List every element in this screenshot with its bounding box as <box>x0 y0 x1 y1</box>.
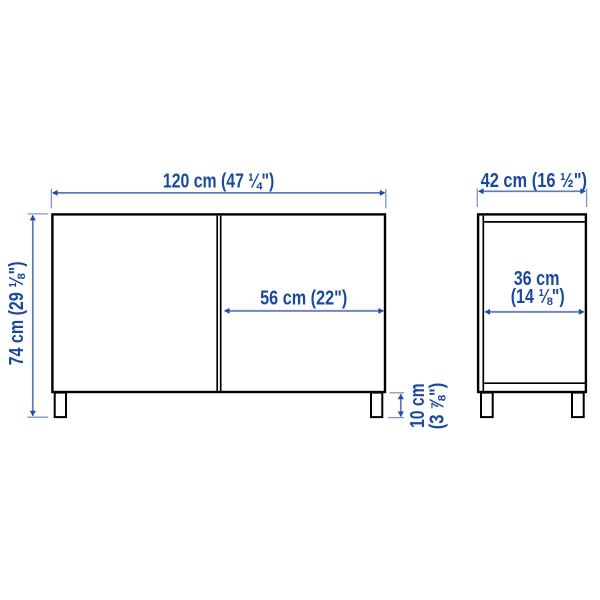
svg-text:120 cm (47 ¼"): 120 cm (47 ¼") <box>163 171 274 193</box>
svg-text:74 cm (29 ⅛"): 74 cm (29 ⅛") <box>6 261 28 365</box>
svg-text:(3 ⅞"): (3 ⅞") <box>426 383 448 430</box>
svg-text:(14 ⅛"): (14 ⅛") <box>511 286 565 308</box>
svg-text:56 cm (22"): 56 cm (22") <box>260 288 347 310</box>
svg-text:42 cm (16 ½"): 42 cm (16 ½") <box>481 170 587 192</box>
